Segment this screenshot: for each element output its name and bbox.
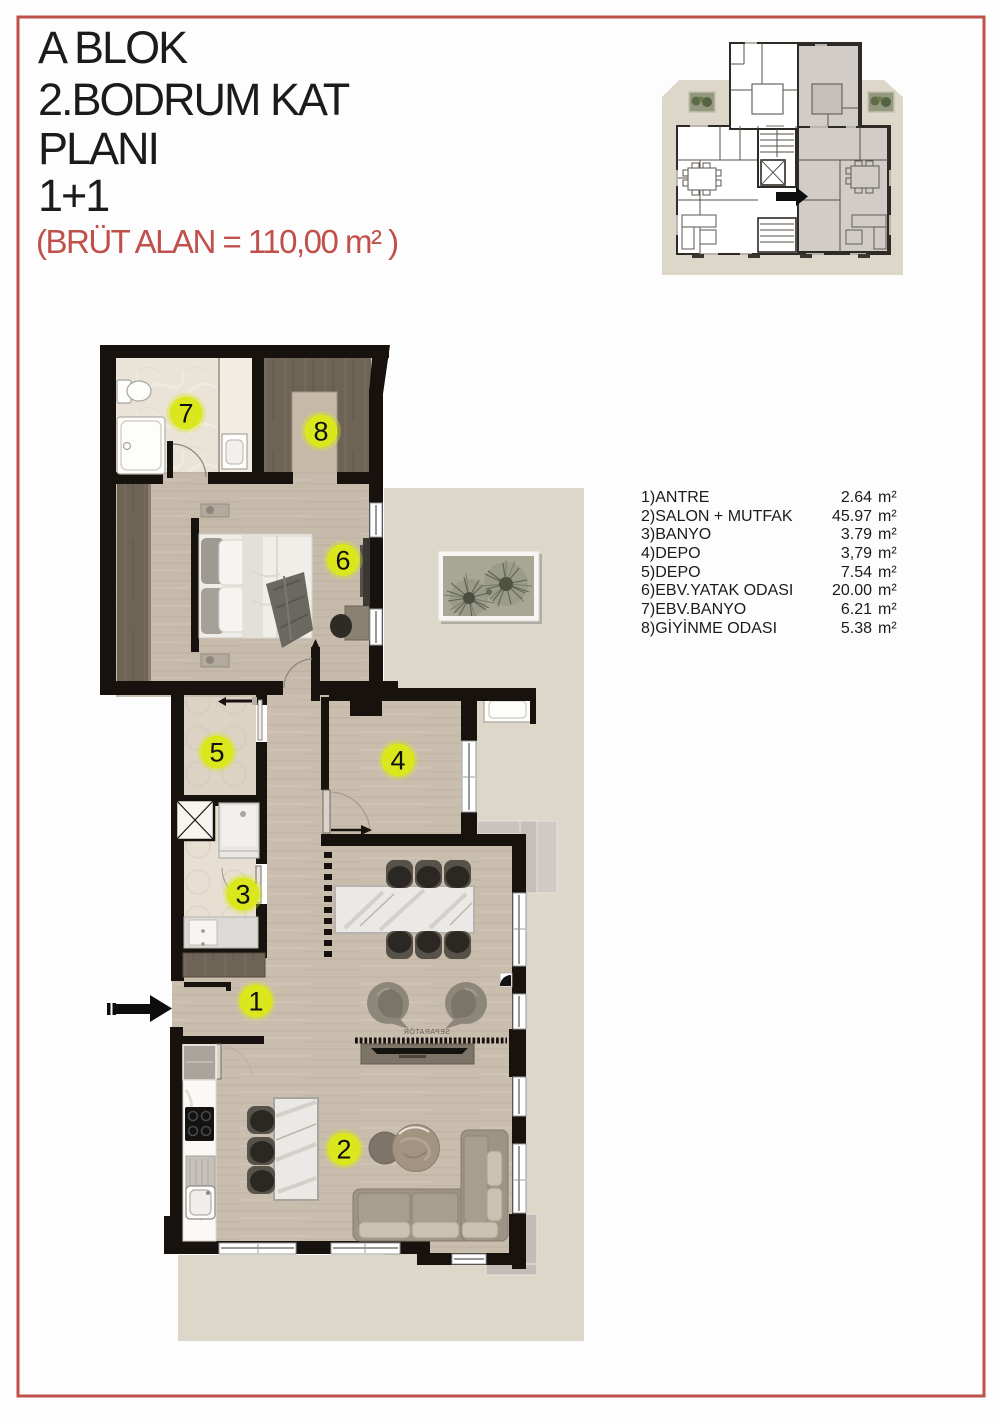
svg-text:3)BANYO: 3)BANYO bbox=[641, 526, 711, 543]
svg-text:m²: m² bbox=[878, 564, 897, 581]
svg-text:m²: m² bbox=[878, 620, 897, 637]
svg-text:m²: m² bbox=[878, 601, 897, 618]
svg-text:PLANI: PLANI bbox=[38, 123, 158, 174]
svg-text:m²: m² bbox=[878, 526, 897, 543]
svg-text:3.79: 3.79 bbox=[841, 526, 872, 543]
svg-text:5)DEPO: 5)DEPO bbox=[641, 564, 701, 581]
svg-text:m²: m² bbox=[878, 489, 897, 506]
svg-text:45.97: 45.97 bbox=[832, 508, 872, 525]
svg-text:8)GİYİNME ODASI: 8)GİYİNME ODASI bbox=[641, 618, 777, 637]
svg-text:m²: m² bbox=[878, 508, 897, 525]
svg-text:20.00: 20.00 bbox=[832, 582, 872, 599]
svg-text:1: 1 bbox=[248, 987, 263, 1017]
svg-text:3,79: 3,79 bbox=[841, 545, 872, 562]
svg-text:2: 2 bbox=[336, 1135, 351, 1165]
svg-text:3: 3 bbox=[235, 880, 250, 910]
svg-text:4)DEPO: 4)DEPO bbox=[641, 545, 701, 562]
svg-text:5.38: 5.38 bbox=[841, 620, 872, 637]
svg-text:2)SALON + MUTFAK: 2)SALON + MUTFAK bbox=[641, 508, 793, 525]
svg-text:2.64: 2.64 bbox=[841, 489, 872, 506]
svg-text:6: 6 bbox=[335, 546, 350, 576]
svg-text:m²: m² bbox=[878, 582, 897, 599]
svg-text:7)EBV.BANYO: 7)EBV.BANYO bbox=[641, 601, 746, 618]
svg-text:8: 8 bbox=[313, 417, 328, 447]
svg-text:5: 5 bbox=[209, 738, 224, 768]
svg-text:7.54: 7.54 bbox=[841, 564, 872, 581]
svg-text:7: 7 bbox=[178, 399, 193, 429]
svg-text:6)EBV.YATAK ODASI: 6)EBV.YATAK ODASI bbox=[641, 582, 793, 599]
svg-text:4: 4 bbox=[390, 746, 405, 776]
svg-text:1+1: 1+1 bbox=[38, 170, 108, 221]
svg-text:6.21: 6.21 bbox=[841, 601, 872, 618]
svg-text:A BLOK: A BLOK bbox=[38, 22, 188, 73]
svg-text:SEPARATÖR: SEPARATÖR bbox=[403, 1028, 450, 1036]
svg-text:(BRÜT ALAN = 110,00 m² ): (BRÜT ALAN = 110,00 m² ) bbox=[36, 223, 398, 260]
svg-text:1)ANTRE: 1)ANTRE bbox=[641, 489, 709, 506]
svg-text:2.BODRUM KAT: 2.BODRUM KAT bbox=[38, 74, 350, 125]
svg-text:m²: m² bbox=[878, 545, 897, 562]
